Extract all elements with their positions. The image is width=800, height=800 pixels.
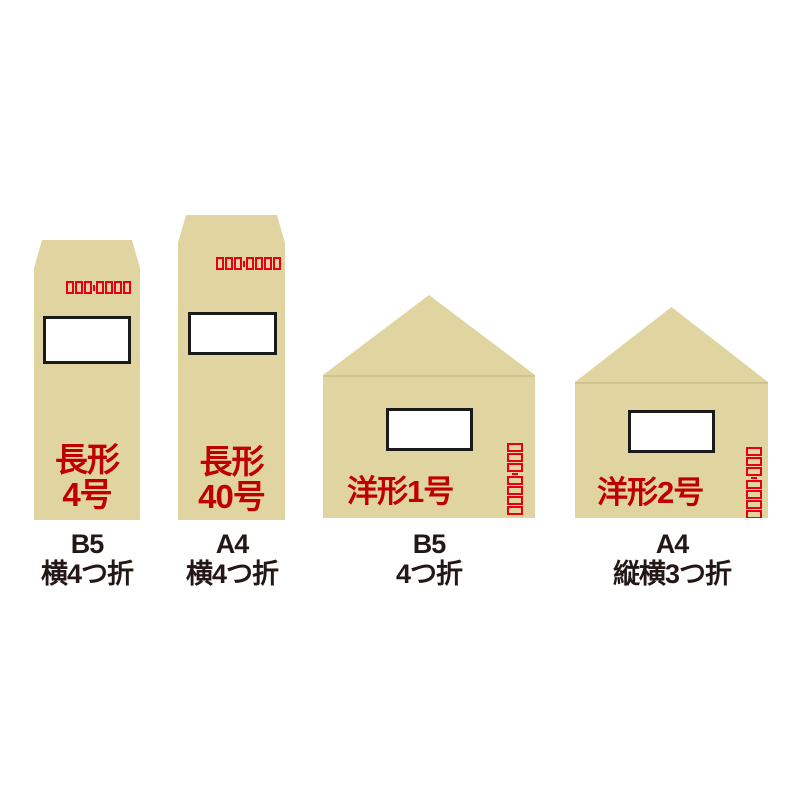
postal-code-box-icon [746, 490, 762, 499]
postal-code-box-icon [746, 510, 762, 519]
address-window [386, 408, 473, 451]
postal-code-box-icon [746, 500, 762, 509]
caption-line: B5 [319, 529, 539, 559]
address-window [628, 410, 715, 453]
postal-code-box-icon [75, 281, 83, 294]
postal-code-box-icon [84, 281, 92, 294]
postal-code-dash-icon [243, 261, 245, 267]
postal-code-box-icon [114, 281, 122, 294]
paper-fold-caption: A4 横4つ折 [122, 529, 342, 589]
postal-code-box-icon [507, 496, 523, 505]
postal-code-boxes-icon [216, 257, 281, 270]
postal-code-box-icon [66, 281, 74, 294]
caption-line: 縦横3つ折 [562, 559, 782, 589]
envelope-nagagata-40: 長形 40号 [178, 215, 285, 520]
label-line: 40号 [178, 479, 285, 514]
label-line: 長形 [178, 444, 285, 479]
postal-code-box-icon [123, 281, 131, 294]
postal-code-box-icon [255, 257, 263, 270]
postal-code-box-icon [264, 257, 272, 270]
postal-code-box-icon [246, 257, 254, 270]
postal-code-box-icon [746, 480, 762, 489]
postal-code-box-icon [216, 257, 224, 270]
postal-code-dash-icon [512, 473, 518, 475]
envelope-size-diagram: 長形 4号 B5 横4つ折 長形 40号 A4 横4つ折 洋形1号 B5 4つ折 [0, 0, 800, 800]
flap-fold-line [575, 382, 768, 384]
envelope-size-label: 長形 4号 [34, 442, 140, 512]
postal-code-box-icon [234, 257, 242, 270]
postal-code-box-icon [507, 476, 523, 485]
postal-code-box-icon [746, 467, 762, 476]
postal-code-box-icon [225, 257, 233, 270]
postal-code-boxes-icon [66, 281, 131, 294]
envelope-yogata-1: 洋形1号 [323, 295, 535, 518]
caption-line: A4 [122, 529, 342, 559]
caption-line: A4 [562, 529, 782, 559]
postal-code-box-icon [507, 443, 523, 452]
label-line: 洋形2号 [597, 477, 703, 509]
postal-code-box-icon [746, 447, 762, 456]
postal-code-box-icon [96, 281, 104, 294]
envelope-yogata-2: 洋形2号 [575, 307, 768, 518]
address-window [43, 316, 131, 364]
postal-code-box-icon [746, 457, 762, 466]
postal-code-boxes-icon [507, 443, 523, 515]
envelope-nagagata-4: 長形 4号 [34, 240, 140, 520]
postal-code-box-icon [507, 463, 523, 472]
paper-fold-caption: A4 縦横3つ折 [562, 529, 782, 589]
caption-line: 4つ折 [319, 559, 539, 589]
envelope-size-label: 洋形2号 [597, 477, 703, 509]
envelope-size-label: 長形 40号 [178, 444, 285, 514]
caption-line: 横4つ折 [122, 559, 342, 589]
address-window [188, 312, 277, 355]
postal-code-dash-icon [751, 477, 757, 479]
postal-code-box-icon [273, 257, 281, 270]
envelope-size-label: 洋形1号 [347, 476, 453, 508]
postal-code-dash-icon [93, 285, 95, 291]
postal-code-box-icon [507, 486, 523, 495]
label-line: 4号 [34, 477, 140, 512]
postal-code-box-icon [105, 281, 113, 294]
label-line: 洋形1号 [347, 476, 453, 508]
flap-fold-line [323, 375, 535, 377]
postal-code-box-icon [507, 506, 523, 515]
postal-code-box-icon [507, 453, 523, 462]
label-line: 長形 [34, 442, 140, 477]
postal-code-boxes-icon [746, 447, 762, 519]
paper-fold-caption: B5 4つ折 [319, 529, 539, 589]
